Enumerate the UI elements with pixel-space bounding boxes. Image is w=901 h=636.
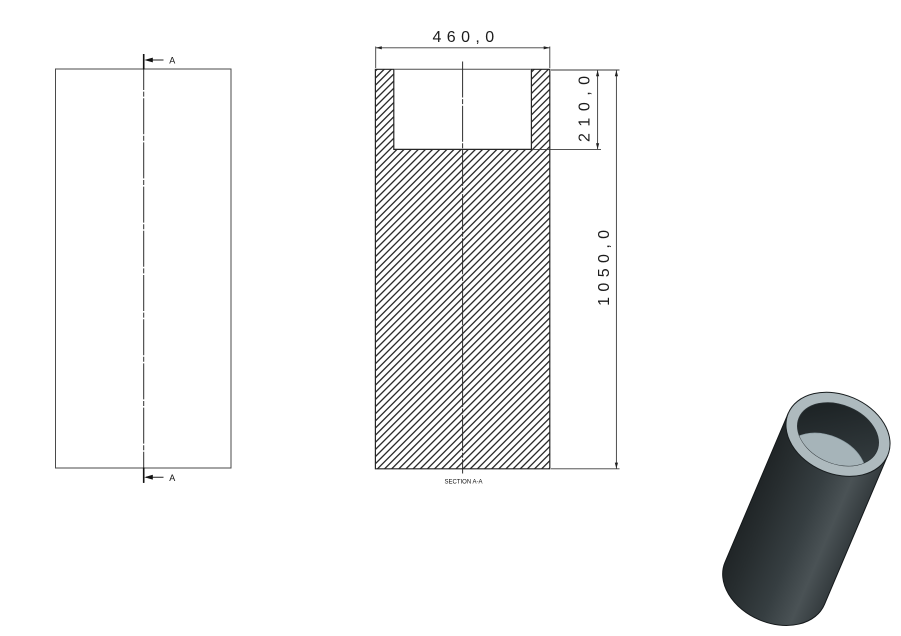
svg-text:SECTION A-A: SECTION A-A — [444, 480, 482, 486]
svg-text:210,0: 210,0 — [577, 69, 594, 142]
svg-text:A: A — [169, 473, 175, 483]
svg-text:A: A — [169, 56, 175, 66]
svg-text:460,0: 460,0 — [432, 29, 499, 46]
svg-text:1050,0: 1050,0 — [596, 225, 613, 306]
